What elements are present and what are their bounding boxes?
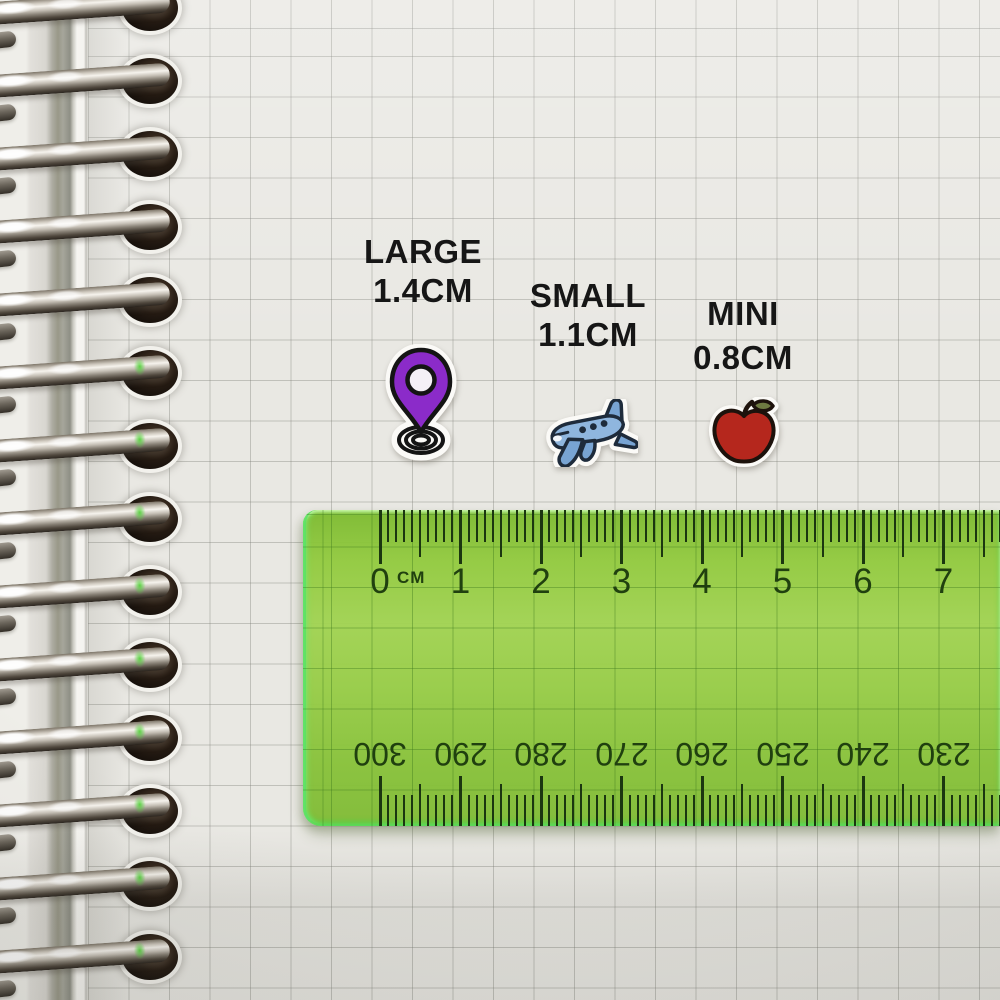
ruler-tick-top (468, 510, 470, 542)
ruler-tick-top (862, 510, 865, 564)
apple-body (714, 411, 773, 462)
ruler-cm-number: 0 (370, 562, 389, 602)
ruler-tick-top (701, 510, 704, 564)
ring-coil-stub (0, 906, 17, 925)
ruler-tick-bottom (870, 795, 872, 826)
ruler-tick-top (983, 510, 985, 557)
ruler-tick-top (709, 510, 711, 542)
ruler-tick-bottom (387, 795, 389, 826)
ruler-tick-bottom (540, 776, 543, 826)
ruler-tick-bottom (991, 795, 993, 826)
ruler-tick-bottom (806, 795, 808, 826)
ring-coil-stub (0, 395, 17, 414)
ruler-tick-bottom (781, 776, 784, 826)
ruler-tick-top (693, 510, 695, 542)
ruler-tick-bottom (717, 795, 719, 826)
label-small: SMALL 1.1CM (503, 276, 673, 354)
grid-showing-through-ruler (303, 510, 1000, 826)
ruler-tick-bottom (516, 795, 518, 826)
ruler-tick-bottom (596, 795, 598, 826)
airplane-sticker (542, 399, 638, 467)
ruler-tick-top (484, 510, 486, 542)
ruler-tick-bottom (967, 795, 969, 826)
ruler-tick-top (476, 510, 478, 542)
ruler-tick-top (500, 510, 502, 557)
ruler-mm-number: 260 (675, 735, 728, 772)
ruler-tick-bottom (798, 795, 800, 826)
ruler-tick-top (677, 510, 679, 542)
ruler-tick-top (773, 510, 775, 542)
ruler-tick-top (781, 510, 784, 564)
ruler-tick-top (838, 510, 840, 542)
ruler-tick-bottom (604, 795, 606, 826)
ruler-tick-top (540, 510, 543, 564)
ruler-mm-number: 240 (836, 735, 889, 772)
ruler-tick-bottom (902, 784, 904, 826)
ruler-tick-top (741, 510, 743, 557)
ruler-tick-bottom (637, 795, 639, 826)
ruler-tick-top (532, 510, 534, 542)
ruler-tick-top (830, 510, 832, 542)
ruler-tick-top (733, 510, 735, 542)
ruler-tick-top (411, 510, 413, 542)
ruler-tick-bottom (532, 795, 534, 826)
ruler-tick-bottom (395, 795, 397, 826)
ruler-tick-top (886, 510, 888, 542)
ruler-tick-top (629, 510, 631, 542)
ruler-tick-bottom (427, 795, 429, 826)
ruler-tick-bottom (951, 795, 953, 826)
ruler-cm-number: 2 (531, 562, 550, 602)
green-ruler: 01234567 CM 300290280270260250240230 (303, 510, 1000, 826)
ruler-tick-top (951, 510, 953, 542)
ruler-tick-bottom (500, 784, 502, 826)
ruler-tick-top (942, 510, 945, 564)
ruler-tick-bottom (580, 784, 582, 826)
ruler-tick-bottom (725, 795, 727, 826)
ruler-tick-bottom (959, 795, 961, 826)
ruler-tick-top (387, 510, 389, 542)
ruler-tick-top (798, 510, 800, 542)
ruler-tick-bottom (556, 795, 558, 826)
ruler-tick-bottom (854, 795, 856, 826)
ruler-tick-top (419, 510, 421, 557)
ruler-tick-bottom (822, 784, 824, 826)
ruler-tick-bottom (443, 795, 445, 826)
ruler-tick-top (403, 510, 405, 542)
ruler-tick-top (435, 510, 437, 542)
location-pin-sticker (385, 344, 457, 464)
ruler-tick-top (443, 510, 445, 542)
ruler-tick-top (870, 510, 872, 542)
ruler-tick-top (459, 510, 462, 564)
spiral-binding (0, 0, 220, 1000)
ruler-tick-top (822, 510, 824, 557)
ruler-unit-label: CM (397, 568, 425, 588)
apple-sticker (706, 397, 782, 469)
ruler-tick-top (894, 510, 896, 542)
ruler-mm-number: 280 (514, 735, 567, 772)
ring-coil-stub (0, 687, 17, 706)
label-mini-size: 0.8CM (658, 336, 828, 380)
ruler-cm-number: 3 (612, 562, 631, 602)
label-small-name: SMALL (503, 276, 673, 315)
ruler-tick-top (790, 510, 792, 542)
ruler-tick-top (959, 510, 961, 542)
ruler-tick-top (588, 510, 590, 542)
label-large-size: 1.4CM (338, 271, 508, 310)
ruler-tick-bottom (476, 795, 478, 826)
ruler-tick-bottom (862, 776, 865, 826)
ruler-tick-top (991, 510, 993, 542)
ruler-tick-bottom (894, 795, 896, 826)
ruler-tick-bottom (765, 795, 767, 826)
ruler-tick-bottom (975, 795, 977, 826)
ruler-tick-bottom (379, 776, 382, 826)
ruler-mm-number: 250 (756, 735, 809, 772)
ring-coil-stub (0, 322, 17, 341)
ring-coil-stub (0, 176, 17, 195)
ruler-tick-bottom (942, 776, 945, 826)
pin-center-dot (408, 367, 435, 394)
ring-coil-stub (0, 979, 17, 998)
ruler-tick-bottom (564, 795, 566, 826)
ring-coil-stub (0, 614, 17, 633)
ruler-tick-top (725, 510, 727, 542)
ruler-tick-top (395, 510, 397, 542)
ruler-tick-top (653, 510, 655, 542)
ruler-tick-top (637, 510, 639, 542)
ruler-cm-number: 4 (692, 562, 711, 602)
ruler-tick-bottom (838, 795, 840, 826)
ruler-tick-bottom (814, 795, 816, 826)
ruler-tick-bottom (588, 795, 590, 826)
ruler-tick-bottom (508, 795, 510, 826)
ruler-cm-number: 1 (451, 562, 470, 602)
ruler-tick-bottom (693, 795, 695, 826)
ruler-tick-bottom (918, 795, 920, 826)
ruler-tick-bottom (468, 795, 470, 826)
ruler-tick-top (564, 510, 566, 542)
ruler-tick-top (854, 510, 856, 542)
ruler-tick-bottom (677, 795, 679, 826)
ruler-tick-top (757, 510, 759, 542)
ruler-tick-top (516, 510, 518, 542)
ruler-tick-top (878, 510, 880, 542)
ruler-mm-number: 300 (353, 735, 406, 772)
label-large: LARGE 1.4CM (338, 232, 508, 310)
ring-coil-stub (0, 541, 17, 560)
ruler-tick-bottom (669, 795, 671, 826)
ruler-tick-top (967, 510, 969, 542)
ruler-tick-top (669, 510, 671, 542)
ruler-tick-top (717, 510, 719, 542)
ruler-tick-bottom (983, 784, 985, 826)
ruler-tick-top (749, 510, 751, 542)
ruler-tick-top (508, 510, 510, 542)
ruler-tick-top (572, 510, 574, 542)
ruler-tick-top (685, 510, 687, 542)
ruler-tick-top (451, 510, 453, 542)
ring-coil-stub (0, 249, 17, 268)
ruler-tick-bottom (620, 776, 623, 826)
ruler-tick-top (580, 510, 582, 557)
ruler-tick-top (596, 510, 598, 542)
ruler-mm-number: 230 (917, 735, 970, 772)
ruler-tick-top (910, 510, 912, 542)
ruler-tick-bottom (926, 795, 928, 826)
ruler-tick-top (492, 510, 494, 542)
ruler-tick-bottom (484, 795, 486, 826)
ruler-tick-bottom (741, 784, 743, 826)
notebook-photo-scene: LARGE 1.4CM SMALL 1.1CM MINI 0.8CM (0, 0, 1000, 1000)
ruler-tick-top (645, 510, 647, 542)
ruler-tick-bottom (685, 795, 687, 826)
ring-coil-stub (0, 468, 17, 487)
ruler-tick-top (934, 510, 936, 542)
ruler-tick-bottom (910, 795, 912, 826)
label-mini-name: MINI (658, 292, 828, 336)
ruler-tick-bottom (492, 795, 494, 826)
ruler-tick-top (427, 510, 429, 542)
ruler-tick-bottom (846, 795, 848, 826)
ruler-tick-top (918, 510, 920, 542)
ruler-tick-bottom (773, 795, 775, 826)
ruler-tick-bottom (886, 795, 888, 826)
ring-coil-stub (0, 833, 17, 852)
label-large-name: LARGE (338, 232, 508, 271)
ruler-cm-number: 6 (853, 562, 872, 602)
ruler-tick-top (765, 510, 767, 542)
ruler-tick-top (814, 510, 816, 542)
ruler-mm-number: 290 (434, 735, 487, 772)
ruler-tick-bottom (548, 795, 550, 826)
ruler-tick-top (620, 510, 623, 564)
ruler-tick-bottom (701, 776, 704, 826)
ruler-tick-bottom (645, 795, 647, 826)
ruler-tick-bottom (830, 795, 832, 826)
ring-coil-stub (0, 30, 17, 49)
ruler-tick-bottom (411, 795, 413, 826)
ruler-tick-bottom (629, 795, 631, 826)
ruler-tick-bottom (878, 795, 880, 826)
ruler-tick-bottom (435, 795, 437, 826)
ruler-tick-bottom (661, 784, 663, 826)
ruler-tick-top (902, 510, 904, 557)
ruler-tick-bottom (934, 795, 936, 826)
ruler-mm-number: 270 (595, 735, 648, 772)
ruler-tick-bottom (419, 784, 421, 826)
ruler-tick-bottom (733, 795, 735, 826)
ruler-tick-bottom (757, 795, 759, 826)
ring-coil-stub (0, 103, 17, 122)
ruler-tick-top (975, 510, 977, 542)
ruler-tick-top (604, 510, 606, 542)
ruler-tick-top (806, 510, 808, 542)
ruler-tick-top (548, 510, 550, 542)
label-mini: MINI 0.8CM (658, 292, 828, 380)
ruler-tick-bottom (524, 795, 526, 826)
ruler-tick-top (524, 510, 526, 542)
ruler-tick-bottom (749, 795, 751, 826)
ruler-tick-bottom (459, 776, 462, 826)
ring-coil-stub (0, 760, 17, 779)
ruler-tick-top (379, 510, 382, 564)
ruler-tick-bottom (451, 795, 453, 826)
ruler-tick-bottom (612, 795, 614, 826)
ruler-cm-number: 5 (773, 562, 792, 602)
ruler-tick-top (926, 510, 928, 542)
ruler-tick-bottom (790, 795, 792, 826)
ruler-tick-bottom (572, 795, 574, 826)
ruler-tick-top (661, 510, 663, 557)
ruler-tick-top (612, 510, 614, 542)
ruler-tick-bottom (403, 795, 405, 826)
ruler-tick-bottom (653, 795, 655, 826)
ruler-tick-top (846, 510, 848, 542)
ruler-tick-bottom (709, 795, 711, 826)
ruler-tick-top (556, 510, 558, 542)
ruler-cm-number: 7 (934, 562, 953, 602)
label-small-size: 1.1CM (503, 315, 673, 354)
